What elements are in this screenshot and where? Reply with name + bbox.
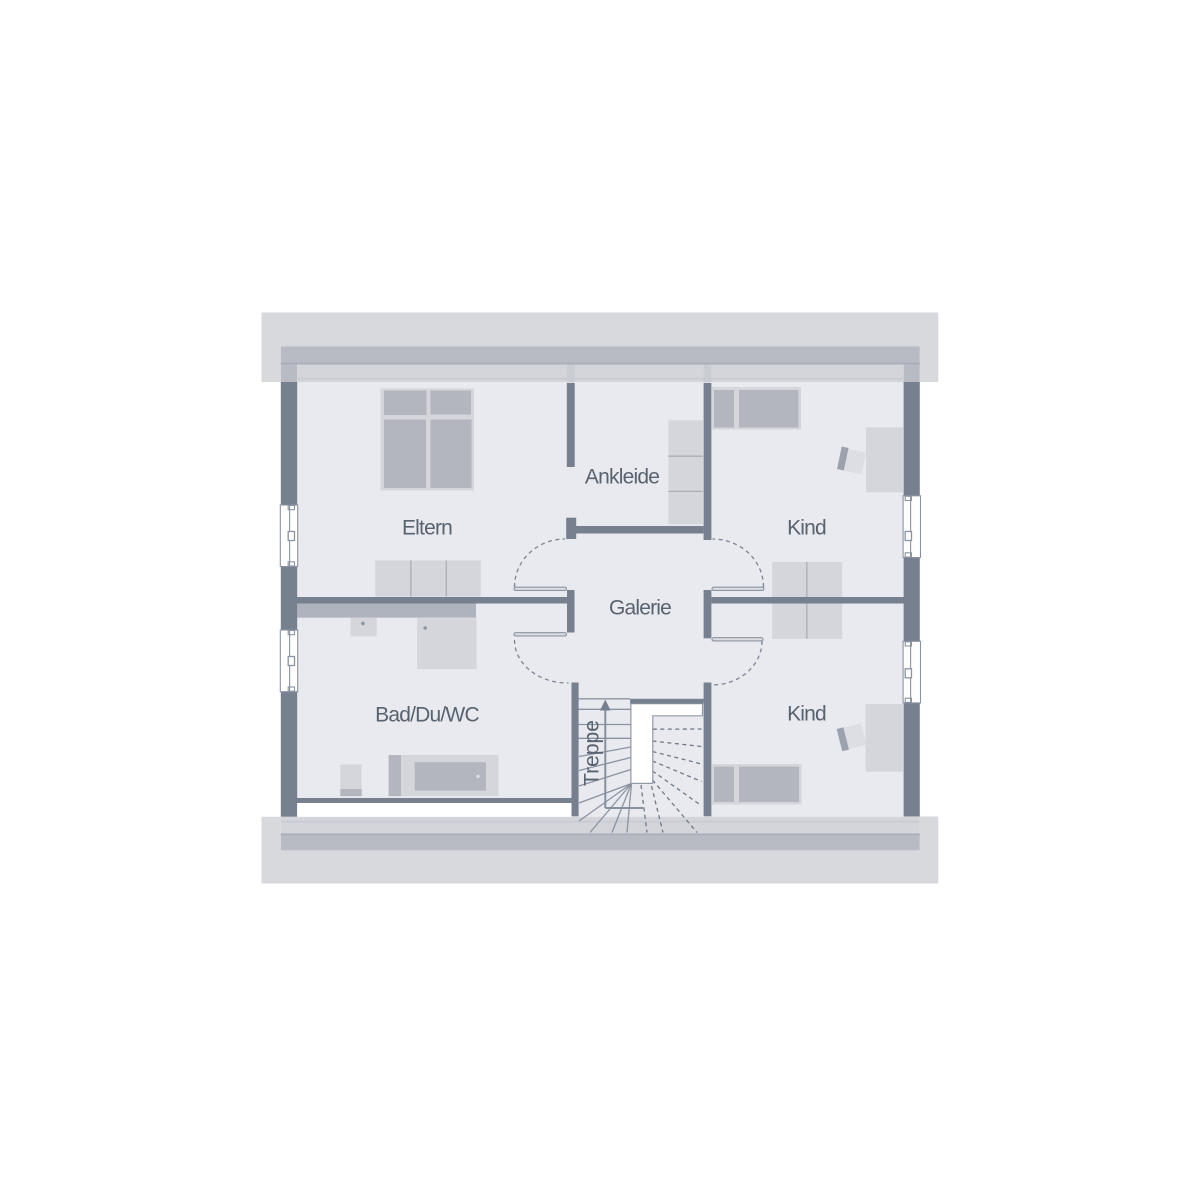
svg-text:Treppe: Treppe <box>581 720 604 786</box>
svg-text:Ankleide: Ankleide <box>585 466 659 489</box>
svg-text:Bad/Du/WC: Bad/Du/WC <box>375 704 479 727</box>
svg-text:Eltern: Eltern <box>402 517 452 540</box>
svg-text:Kind: Kind <box>787 517 826 540</box>
svg-text:Kind: Kind <box>787 703 826 726</box>
svg-text:Galerie: Galerie <box>609 597 671 620</box>
